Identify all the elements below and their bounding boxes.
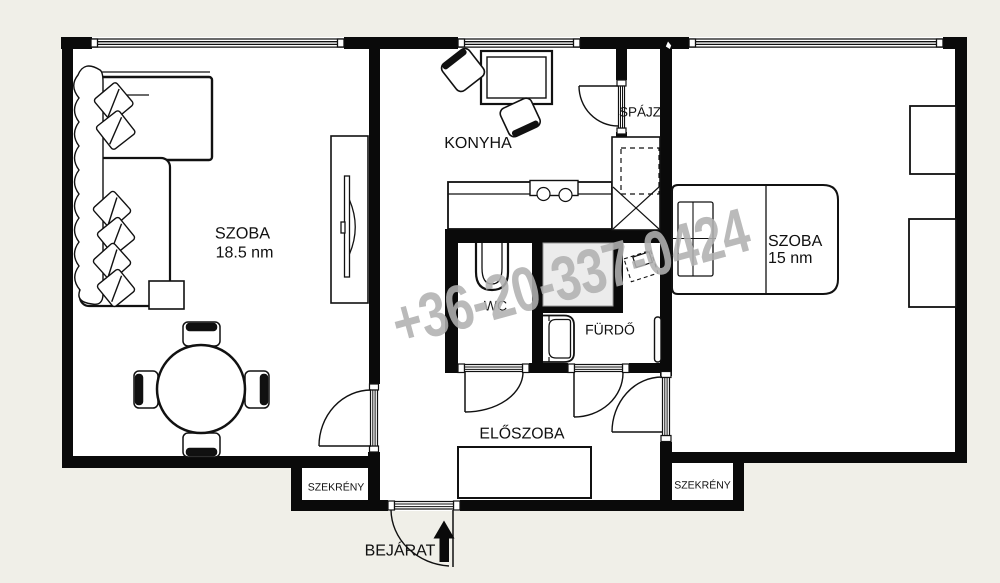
svg-text:KONYHA: KONYHA [444, 135, 512, 152]
svg-text:SZEKRÉNY: SZEKRÉNY [674, 479, 731, 492]
svg-text:SPÁJZ: SPÁJZ [619, 105, 661, 120]
svg-text:FÜRDŐ: FÜRDŐ [585, 322, 635, 338]
svg-text:SZOBA: SZOBA [768, 233, 823, 250]
svg-text:SZEKRÉNY: SZEKRÉNY [308, 481, 365, 494]
svg-text:BEJÁRAT: BEJÁRAT [365, 542, 436, 560]
svg-text:18.5 nm: 18.5 nm [216, 245, 274, 262]
svg-text:ELŐSZOBA: ELŐSZOBA [479, 425, 565, 443]
svg-text:15 nm: 15 nm [768, 250, 812, 267]
svg-text:SZOBA: SZOBA [215, 225, 270, 243]
